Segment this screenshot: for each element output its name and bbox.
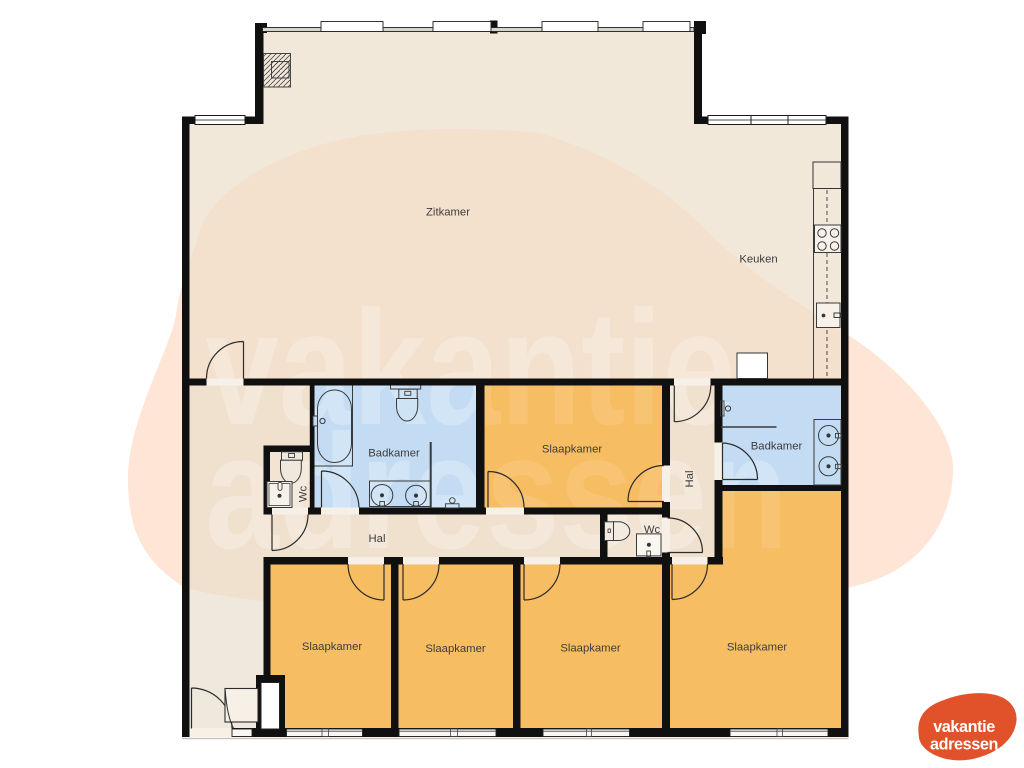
svg-text:Hal: Hal xyxy=(684,471,696,488)
svg-text:adressen: adressen xyxy=(930,736,998,754)
svg-text:Slaapkamer: Slaapkamer xyxy=(302,641,363,653)
svg-text:vakantie: vakantie xyxy=(933,718,995,736)
svg-text:Wc: Wc xyxy=(644,524,661,536)
svg-text:Hal: Hal xyxy=(369,533,386,545)
svg-text:Badkamer: Badkamer xyxy=(368,448,420,460)
svg-text:Badkamer: Badkamer xyxy=(751,441,803,453)
svg-text:Zitkamer: Zitkamer xyxy=(426,207,470,219)
svg-text:Slaapkamer: Slaapkamer xyxy=(560,643,621,655)
svg-text:Slaapkamer: Slaapkamer xyxy=(425,643,486,655)
svg-text:Slaapkamer: Slaapkamer xyxy=(727,642,788,654)
svg-text:Keuken: Keuken xyxy=(739,254,777,266)
svg-text:Slaapkamer: Slaapkamer xyxy=(542,444,603,456)
svg-text:Wc: Wc xyxy=(298,485,310,502)
